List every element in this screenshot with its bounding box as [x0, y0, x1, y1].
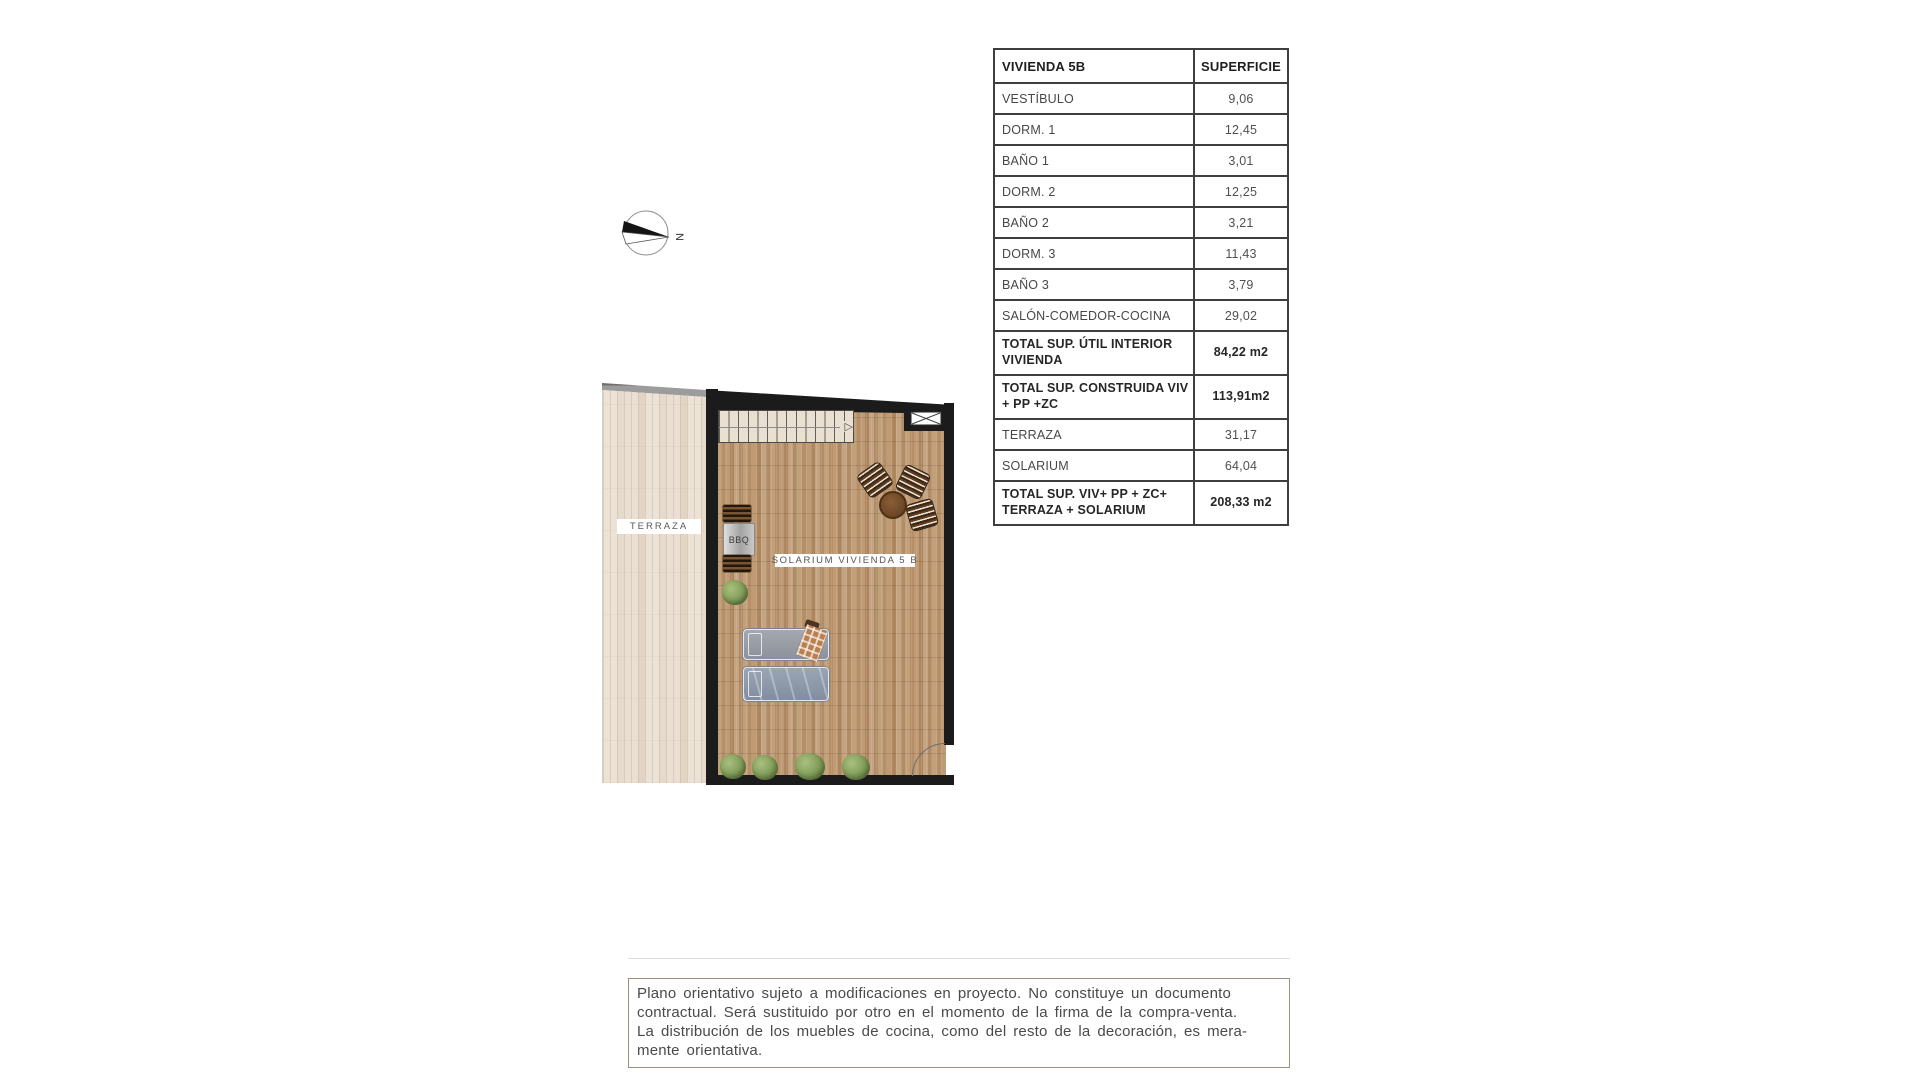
table-row-total-general: TOTAL SUP. VIV+ PP + ZC+ TERRAZA + SOLAR… [994, 481, 1288, 525]
solarium-label: SOLARIUM VIVIENDA 5 B [775, 554, 915, 567]
round-table [879, 491, 907, 519]
north-compass-icon: N [613, 202, 691, 264]
compass-north-label: N [673, 233, 685, 241]
plant [842, 754, 870, 780]
table-row: TERRAZA31,17 [994, 419, 1288, 450]
table-row-total-util: TOTAL SUP. ÚTIL INTERIOR VIVIENDA84,22 m… [994, 331, 1288, 375]
bbq-label: BBQ [729, 535, 750, 545]
plant [795, 753, 825, 780]
table-row: VESTÍBULO9,06 [994, 83, 1288, 114]
solarium-floor [716, 407, 946, 777]
sun-lounger [743, 667, 829, 701]
stairs: ▷ [718, 410, 854, 443]
stairs-direction-arrow-icon: ▷ [844, 421, 853, 432]
table-row: DORM. 311,43 [994, 238, 1288, 269]
disclaimer-line: La distribución de los muebles de cocina… [637, 1022, 1281, 1041]
plant [722, 580, 748, 605]
skylight-x-icon [910, 411, 942, 426]
table-row: SALÓN-COMEDOR-COCINA29,02 [994, 300, 1288, 331]
plan-sheet: N VIVIENDA 5B SUPERFICIE VESTÍBULO9,06 D… [0, 0, 1920, 1080]
table-header-superficie: SUPERFICIE [1194, 49, 1288, 83]
bottom-wall [706, 775, 954, 785]
disclaimer-line: contractual. Será sustituido por otro en… [637, 1003, 1281, 1022]
table-row: DORM. 112,45 [994, 114, 1288, 145]
table-row-total-construida: TOTAL SUP. CONSTRUIDA VIV + PP +ZC113,91… [994, 375, 1288, 419]
floor-plan: TERRAZA ▷ BBQ [602, 383, 954, 785]
bbq-unit: BBQ [723, 523, 755, 556]
left-wall [706, 389, 718, 785]
table-row: BAÑO 33,79 [994, 269, 1288, 300]
plant [720, 754, 746, 779]
table-row: DORM. 212,25 [994, 176, 1288, 207]
surface-table: VIVIENDA 5B SUPERFICIE VESTÍBULO9,06 DOR… [993, 48, 1287, 526]
table-header-vivienda: VIVIENDA 5B [994, 49, 1194, 83]
terraza-area [602, 383, 707, 783]
bbq-counter-bottom [723, 555, 751, 572]
disclaimer-line: Plano orientativo sujeto a modificacione… [637, 984, 1281, 1003]
bbq-counter-top [723, 505, 751, 522]
frame-line [628, 958, 1290, 959]
solarium-area: ▷ BBQ SOLARIUM VIVIENDA 5 B [706, 383, 954, 785]
table-row: SOLARIUM64,04 [994, 450, 1288, 481]
table-row: BAÑO 13,01 [994, 145, 1288, 176]
right-wall [944, 403, 954, 745]
table-header-row: VIVIENDA 5B SUPERFICIE [994, 49, 1288, 83]
disclaimer-box: Plano orientativo sujeto a modificacione… [628, 978, 1290, 1068]
terraza-label: TERRAZA [617, 519, 701, 534]
table-row: BAÑO 23,21 [994, 207, 1288, 238]
disclaimer-line: mente orientativa. [637, 1041, 1281, 1060]
plant [752, 755, 778, 780]
